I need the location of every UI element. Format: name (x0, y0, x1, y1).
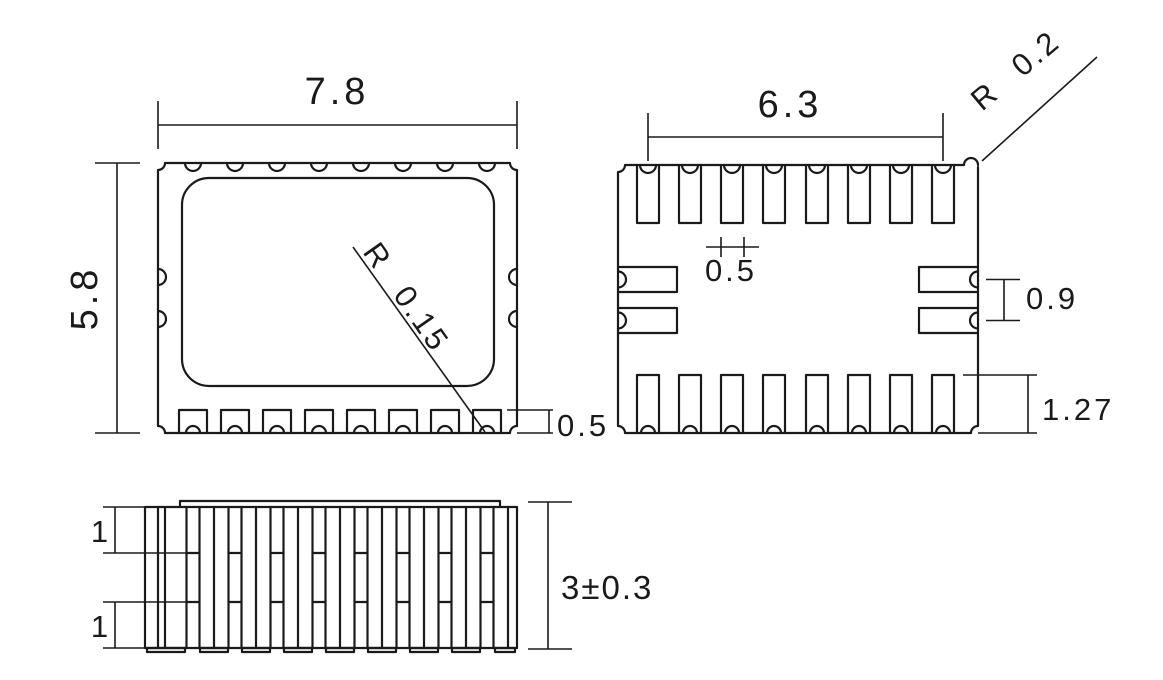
bottom-view-outline (618, 158, 978, 433)
side-view-outline (145, 507, 517, 648)
bottom-view-pad-length-dim-lines (963, 375, 1037, 433)
package-outline-drawing: 7.8 5.8 R 0.15 0.5 6.3 R 0.2 0.5 0.9 1.2… (0, 0, 1163, 680)
bottom-view-bottom-pads (637, 375, 954, 433)
side-view-top-band-dim-label: 1 (91, 514, 111, 549)
side-view-bottom-band-dim-label: 1 (91, 609, 111, 644)
bottom-view-side-pads (618, 267, 978, 333)
top-view-top-edge-notches (185, 163, 495, 171)
side-view-bottom-pad-marks (147, 648, 515, 652)
bottom-view-pad-width-dim-label: 0.5 (705, 253, 757, 288)
bottom-view-width-dim-label: 6.3 (758, 84, 823, 126)
side-view-dimensions: 1 1 3±0.3 (91, 502, 653, 649)
top-view-height-dim-label: 5.8 (64, 266, 106, 331)
side-view-face-lines (214, 507, 508, 648)
side-view (145, 501, 517, 652)
top-view-width-dim-label: 7.8 (305, 71, 370, 113)
bottom-view-corner-radius-dim-label: R 0.2 (964, 23, 1067, 117)
bottom-view (618, 158, 978, 433)
side-view-height-dim-label: 3±0.3 (561, 569, 653, 606)
top-view-pad-height-dim-label: 0.5 (557, 408, 609, 443)
technical-drawing-page: 7.8 5.8 R 0.15 0.5 6.3 R 0.2 0.5 0.9 1.2… (0, 0, 1163, 680)
top-view-body-face (182, 178, 494, 386)
top-view-side-edge-notches (158, 269, 517, 327)
top-view-bottom-pads (179, 410, 501, 433)
top-view (158, 163, 517, 433)
top-view-dimensions: 7.8 5.8 R 0.15 0.5 (64, 71, 609, 443)
side-view-left-castellation-lines (158, 507, 165, 648)
bottom-view-side-pad-pitch-dim-label: 0.9 (1026, 281, 1078, 316)
top-view-pad-height-dim-lines (507, 410, 553, 433)
bottom-view-side-pad-pitch-dim-lines (986, 280, 1020, 321)
top-view-outline (158, 163, 517, 433)
bottom-view-dimensions: 6.3 R 0.2 0.5 0.9 1.27 (648, 23, 1114, 433)
bottom-view-pad-length-dim-label: 1.27 (1042, 392, 1114, 427)
bottom-view-top-pads (637, 165, 954, 223)
top-view-radius-dim-label: R 0.15 (356, 236, 457, 359)
